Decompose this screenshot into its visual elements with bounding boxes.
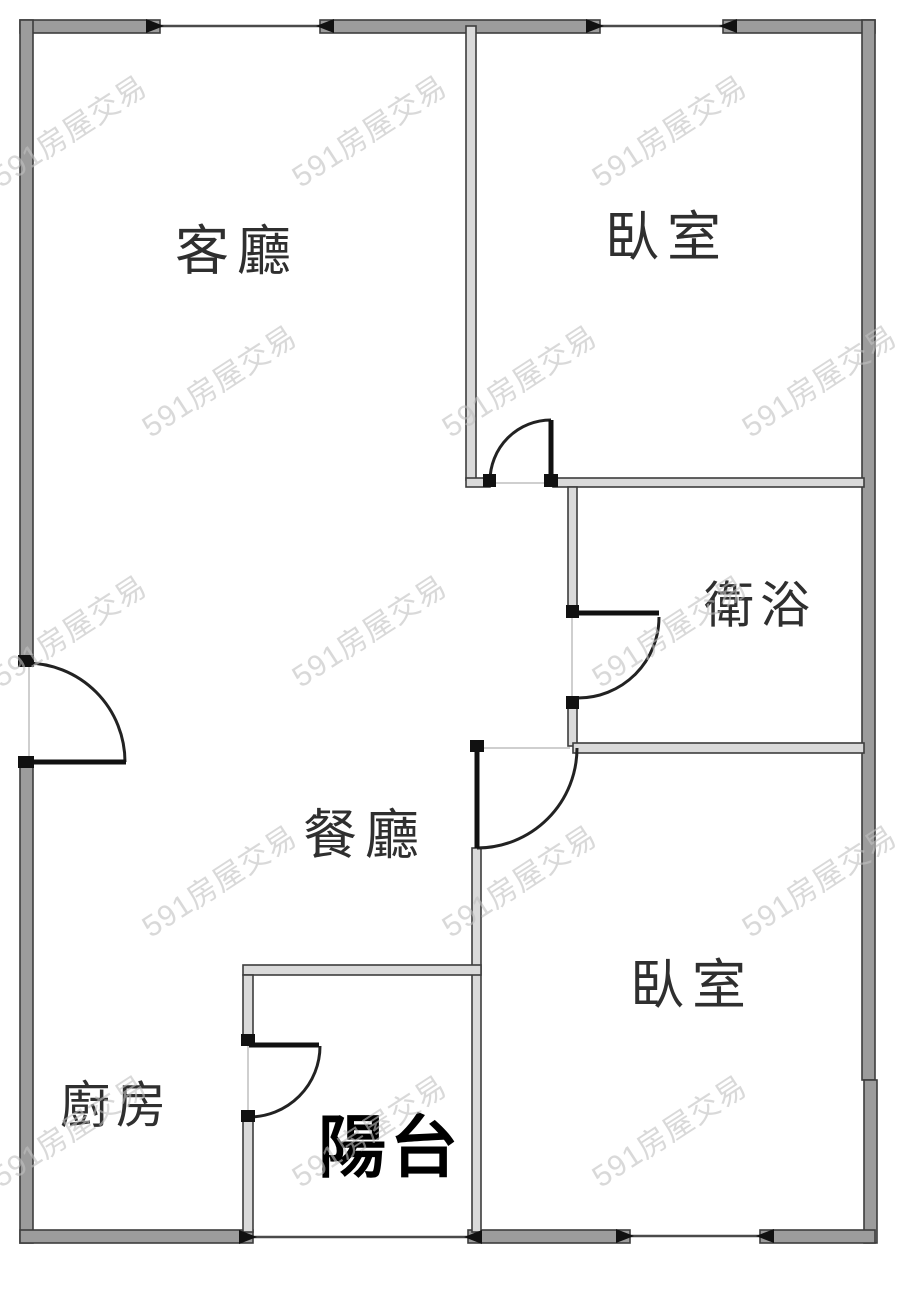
bedroom1-label: 臥室: [605, 207, 729, 267]
bedroom1-door-swing-arc: [490, 420, 551, 481]
watermark-4: 591房屋交易: [437, 320, 603, 444]
entry-door-jamb-1: [18, 756, 34, 768]
bedroom1-door-jamb-1: [544, 474, 558, 487]
living-room-label: 客廳: [175, 221, 299, 281]
floor-plan: 客廳臥室衛浴餐廳臥室廚房陽台591房屋交易591房屋交易591房屋交易591房屋…: [0, 0, 900, 1290]
watermark-2: 591房屋交易: [587, 70, 753, 194]
bedroom2-label: 臥室: [630, 955, 754, 1015]
wall-bedroom2-bottom-wall-right: [760, 1230, 875, 1243]
watermark-9: 591房屋交易: [137, 820, 303, 944]
wall-hall-bedroom2-wall: [573, 743, 864, 753]
wall-bathroom-left-wall-upper: [568, 487, 577, 615]
wall-kitchen-balcony-wall-lower: [243, 1118, 253, 1232]
wall-balcony-top-wall: [243, 965, 481, 975]
bedroom2-hall-door-jamb-0: [470, 740, 484, 752]
wall-kitchen-bottom-wall: [20, 1230, 253, 1243]
watermark-7: 591房屋交易: [287, 570, 453, 694]
kitchen-balcony-door-jamb-0: [241, 1034, 255, 1046]
entry-door-swing-arc: [26, 663, 125, 762]
watermark-14: 591房屋交易: [587, 1070, 753, 1194]
kitchen-balcony-door-jamb-1: [241, 1110, 255, 1122]
wall-right-wall-lower: [864, 1080, 877, 1243]
wall-top-wall-left: [20, 20, 160, 33]
wall-bedroom1-bottom-wall: [553, 478, 864, 487]
bathroom-door-jamb-0: [566, 605, 579, 618]
dining-room-label: 餐廳: [303, 805, 427, 865]
wall-bedroom2-bottom-wall-left: [468, 1230, 630, 1243]
bathroom-door-jamb-1: [566, 696, 579, 709]
watermark-1: 591房屋交易: [287, 70, 453, 194]
bedroom2-hall-door-swing-arc: [477, 748, 577, 848]
wall-left-wall-upper: [20, 20, 33, 665]
kitchen-balcony-door-swing-arc: [249, 1046, 320, 1117]
wall-kitchen-balcony-wall-upper: [243, 975, 253, 1043]
watermark-3: 591房屋交易: [137, 320, 303, 444]
wall-right-wall-upper: [862, 20, 875, 1080]
floor-plan-svg: 客廳臥室衛浴餐廳臥室廚房陽台591房屋交易591房屋交易591房屋交易591房屋…: [0, 0, 900, 1290]
wall-top-wall-mid: [320, 20, 600, 33]
bedroom1-door-jamb-0: [483, 474, 496, 487]
wall-top-wall-right: [723, 20, 875, 33]
